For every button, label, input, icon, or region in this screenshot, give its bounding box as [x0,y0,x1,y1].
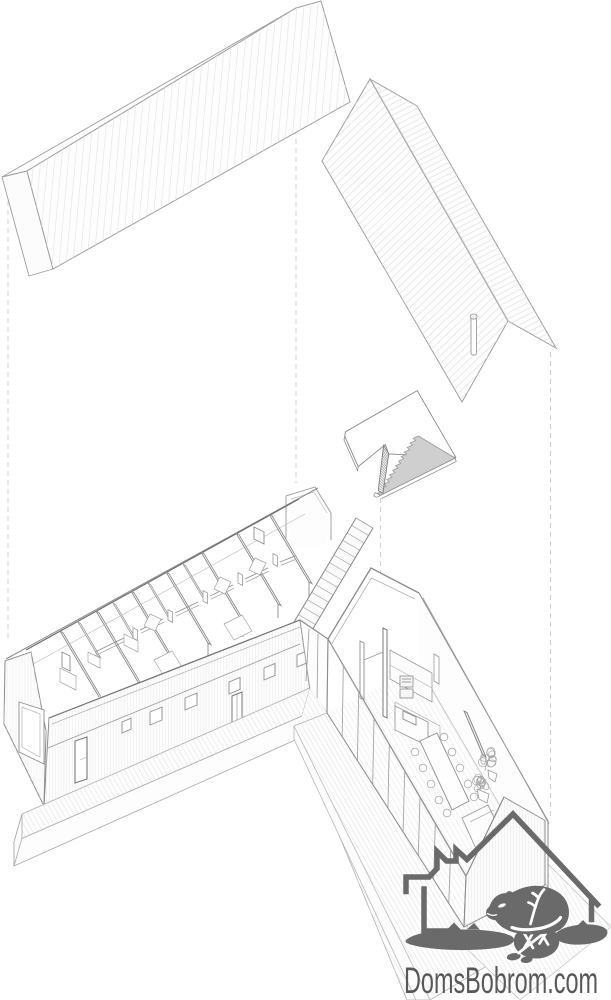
svg-text:DomsBobrom.com: DomsBobrom.com [404,960,598,1000]
